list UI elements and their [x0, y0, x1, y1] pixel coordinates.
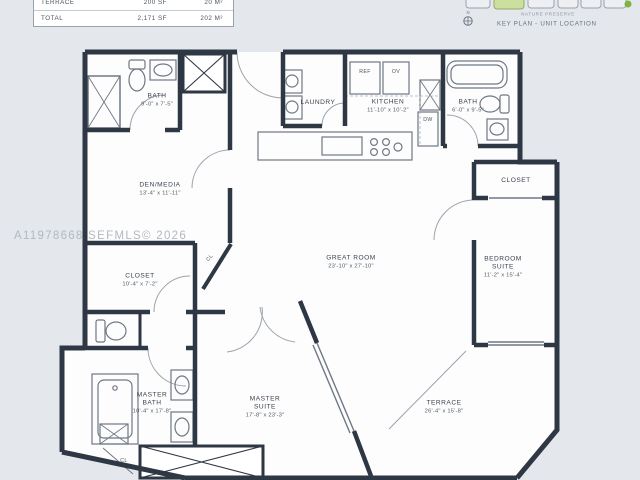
bath-1-dims: 9'-0" x 7'-5" — [141, 102, 173, 108]
terrace-name: TERRACE — [425, 399, 464, 407]
mls-watermark: A11978668 SEFMLS© 2026 — [14, 230, 187, 242]
elevator-shaft — [183, 54, 225, 92]
key-plan-drawing: N NATURE PRESERVE KEY PLAN - UNIT LOCATI… — [460, 0, 636, 34]
key-plan: N NATURE PRESERVE KEY PLAN - UNIT LOCATI… — [460, 0, 636, 34]
room-label-kitchen: KITCHEN 11'-10" x 10'-2" — [367, 98, 409, 113]
room-label-master-suite: MASTER SUITE 17'-8" x 23'-3" — [244, 395, 286, 418]
table-row-terrace: TERRACE 200 SF 20 M² — [34, 0, 233, 10]
bath-1-name: BATH — [141, 92, 173, 100]
room-label-closet-left: CLOSET 10'-4" x 7'-2" — [122, 272, 157, 287]
bedroom-suite-dims: 11'-2" x 15'-4" — [477, 273, 529, 279]
room-label-bedroom-suite: BEDROOM SUITE 11'-2" x 15'-4" — [477, 255, 529, 278]
room-label-great-room: GREAT ROOM 23'-10" x 27'-10" — [326, 254, 375, 269]
great-room-name: GREAT ROOM — [326, 254, 375, 262]
table-cell-label: TERRACE — [34, 0, 109, 6]
closet-left-name: CLOSET — [122, 272, 157, 280]
master-suite-name: MASTER SUITE — [244, 395, 286, 411]
table-cell-sf: 200 SF — [109, 0, 167, 6]
map-marker-icon — [625, 1, 632, 8]
floor-plan-drawing: A11978668 SEFMLS© 2026 — [0, 0, 640, 480]
table-cell-m2: 20 M² — [167, 0, 233, 6]
unit-location-highlight — [494, 0, 524, 9]
dishwasher-label: DW — [423, 117, 432, 123]
master-bath-name: MASTER BATH — [131, 391, 173, 407]
floorplan-page: A11978668 SEFMLS© 2026 — [0, 0, 640, 480]
room-label-closet-right: CLOSET — [501, 177, 530, 185]
refrigerator-label: REF — [359, 69, 371, 75]
table-row-total: TOTAL 2,171 SF 202 M² — [34, 10, 233, 26]
master-bath-dims: 10'-4" x 17'-8" — [131, 409, 173, 415]
great-room-dims: 23'-10" x 27'-10" — [326, 264, 375, 270]
room-label-bath-1: BATH 9'-0" x 7'-5" — [141, 92, 173, 107]
compass-icon — [464, 17, 472, 25]
kitchen-dims: 11'-10" x 10'-2" — [367, 108, 409, 114]
bath-2-dims: 6'-0" x 9'-5" — [452, 108, 484, 114]
table-cell-m2: 202 M² — [167, 15, 233, 22]
compass-north-label: N — [466, 10, 469, 15]
room-label-laundry: LAUNDRY — [301, 99, 336, 107]
key-plan-buildings — [466, 0, 626, 9]
master-suite-dims: 17'-8" x 23'-3" — [244, 413, 286, 419]
kitchen-name: KITCHEN — [367, 98, 409, 106]
laundry-name: LAUNDRY — [301, 99, 336, 107]
closet-right-name: CLOSET — [501, 177, 530, 185]
oven-label: OV — [392, 69, 400, 75]
den-media-dims: 13'-4" x 11'-11" — [139, 191, 180, 197]
closet-left-dims: 10'-4" x 7'-2" — [122, 282, 157, 288]
bedroom-suite-name: BEDROOM SUITE — [477, 255, 529, 271]
terrace-dims: 26'-4" x 15'-8" — [425, 409, 464, 415]
table-cell-label: TOTAL — [34, 15, 109, 22]
area-table: TERRACE 200 SF 20 M² TOTAL 2,171 SF 202 … — [33, 0, 234, 27]
table-cell-sf: 2,171 SF — [109, 15, 167, 22]
room-label-bath-2: BATH 6'-0" x 9'-5" — [452, 98, 484, 113]
room-label-master-bath: MASTER BATH 10'-4" x 17'-8" — [131, 391, 173, 414]
nature-preserve-label: NATURE PRESERVE — [521, 12, 575, 17]
den-media-name: DEN/MEDIA — [139, 181, 180, 189]
bath-2-name: BATH — [452, 98, 484, 106]
room-label-den-media: DEN/MEDIA 13'-4" x 11'-11" — [139, 181, 180, 196]
closet-bottom-label: CL — [120, 458, 127, 464]
key-plan-caption: KEY PLAN - UNIT LOCATION — [497, 21, 597, 28]
room-label-terrace: TERRACE 26'-4" x 15'-8" — [425, 399, 464, 414]
